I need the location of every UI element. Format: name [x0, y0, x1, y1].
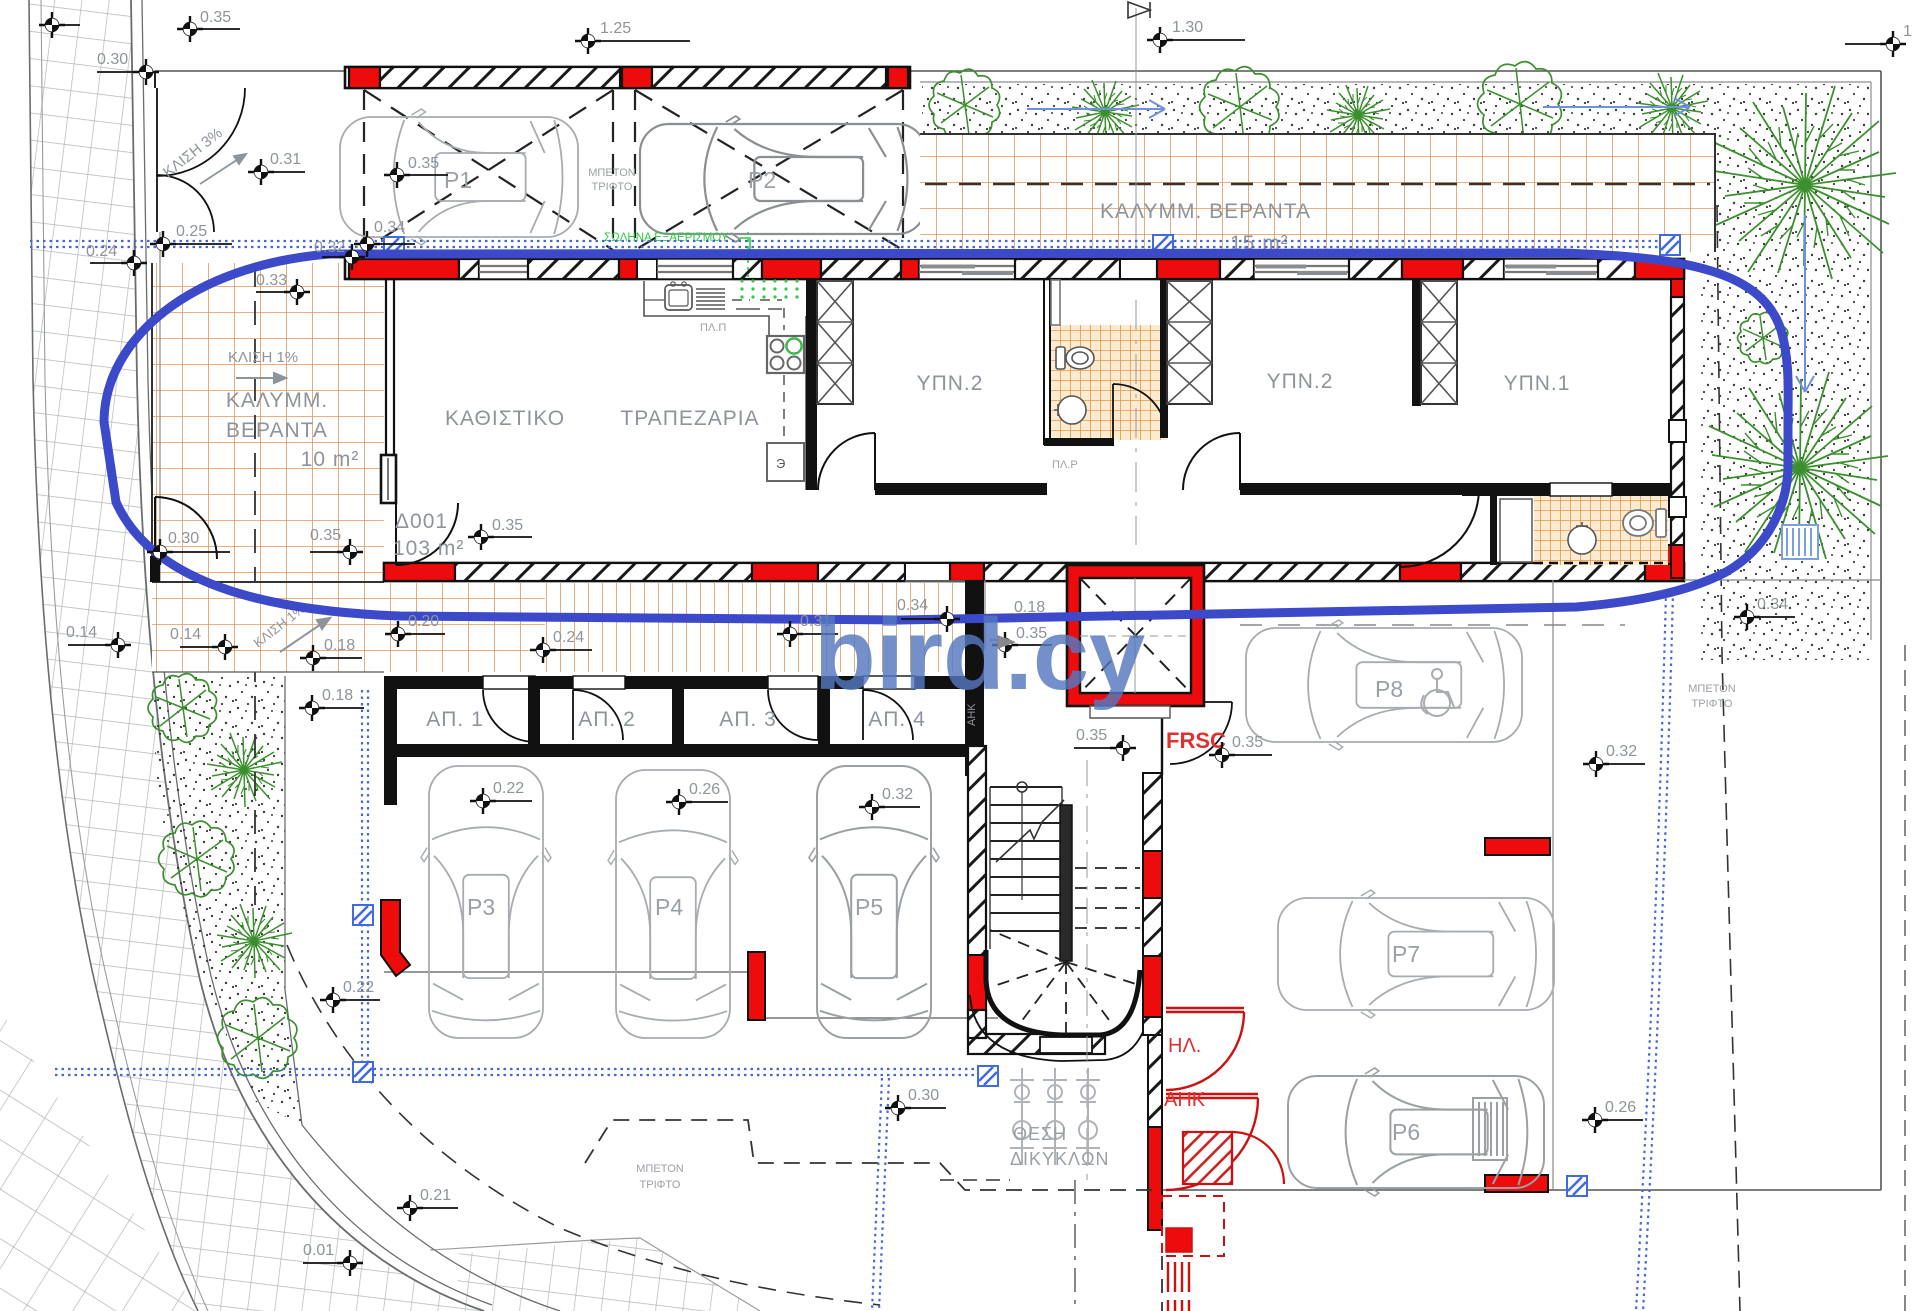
svg-text:ΚΑΘΙΣΤΙΚΟ: ΚΑΘΙΣΤΙΚΟ — [445, 407, 565, 430]
svg-text:ΥΠΝ.2: ΥΠΝ.2 — [917, 372, 984, 395]
svg-text:P5: P5 — [855, 894, 883, 920]
svg-text:0.35: 0.35 — [310, 527, 341, 544]
svg-text:0.35: 0.35 — [1232, 734, 1263, 751]
svg-text:1: 1 — [1903, 23, 1912, 40]
svg-text:0.32: 0.32 — [314, 239, 345, 256]
svg-text:ΑΠ. 3: ΑΠ. 3 — [719, 708, 777, 731]
svg-text:P6: P6 — [1392, 1119, 1420, 1145]
svg-text:ΘΕΣΗ: ΘΕΣΗ — [1013, 1124, 1067, 1144]
svg-text:Э: Э — [776, 456, 785, 471]
svg-text:0.22: 0.22 — [343, 979, 374, 996]
svg-text:ΔΙΚΥΚΛΩΝ: ΔΙΚΥΚΛΩΝ — [1010, 1149, 1110, 1169]
svg-text:P7: P7 — [1392, 941, 1420, 967]
svg-text:0.20: 0.20 — [408, 613, 439, 630]
svg-text:0.01: 0.01 — [303, 1242, 334, 1259]
svg-text:ΑΠ. 4: ΑΠ. 4 — [868, 708, 926, 731]
svg-text:P1: P1 — [444, 167, 472, 193]
svg-text:ΑΠ. 1: ΑΠ. 1 — [426, 708, 484, 731]
svg-text:P8: P8 — [1375, 676, 1403, 702]
svg-text:0.14: 0.14 — [170, 626, 201, 643]
svg-text:0.34: 0.34 — [374, 219, 405, 236]
svg-text:0.35: 0.35 — [200, 9, 231, 26]
svg-text:ΒΕΡΑΝΤΑ: ΒΕΡΑΝΤΑ — [226, 419, 328, 442]
svg-text:P2: P2 — [748, 167, 776, 193]
svg-text:ΤΡΑΠΕΖΑΡΙΑ: ΤΡΑΠΕΖΑΡΙΑ — [620, 407, 759, 430]
svg-text:0.26: 0.26 — [1605, 1099, 1636, 1116]
svg-text:Δ001: Δ001 — [395, 510, 448, 533]
svg-text:0.30: 0.30 — [97, 51, 128, 68]
svg-text:ΚΛΙΣΗ 1%: ΚΛΙΣΗ 1% — [228, 349, 298, 366]
svg-text:0.31: 0.31 — [270, 151, 301, 168]
svg-text:ΚΑΛΥΜΜ. ΒΕΡΑΝΤΑ: ΚΑΛΥΜΜ. ΒΕΡΑΝΤΑ — [1100, 200, 1311, 223]
svg-text:ΑΠ. 2: ΑΠ. 2 — [578, 708, 636, 731]
svg-text:P4: P4 — [655, 894, 683, 920]
svg-text:ΜΠΕΤΟΝ: ΜΠΕΤΟΝ — [588, 167, 636, 179]
svg-text:0.18: 0.18 — [322, 687, 353, 704]
svg-text:0.33: 0.33 — [256, 272, 287, 289]
svg-text:0.35: 0.35 — [1076, 727, 1107, 744]
svg-text:ΤΡΙΦΤΟ: ΤΡΙΦΤΟ — [592, 181, 633, 193]
svg-text:ΚΑΛΥΜΜ.: ΚΑΛΥΜΜ. — [226, 389, 328, 412]
svg-text:0.32: 0.32 — [882, 786, 913, 803]
svg-text:0.24: 0.24 — [553, 629, 584, 646]
svg-text:ΗΛ.: ΗΛ. — [1168, 1035, 1201, 1057]
svg-text:1.25: 1.25 — [600, 20, 631, 37]
svg-text:0.34: 0.34 — [1757, 596, 1788, 613]
svg-text:103 m²: 103 m² — [393, 537, 464, 560]
svg-text:ΠΛ.Ρ: ΠΛ.Ρ — [1052, 459, 1078, 471]
svg-text:0.18: 0.18 — [324, 637, 355, 654]
svg-text:ΜΠΕΤΟΝ: ΜΠΕΤΟΝ — [1688, 683, 1736, 695]
svg-text:1.30: 1.30 — [1172, 19, 1203, 36]
svg-text:0.22: 0.22 — [493, 780, 524, 797]
svg-text:0.35: 0.35 — [492, 517, 523, 534]
svg-text:0.30: 0.30 — [168, 530, 199, 547]
svg-text:0.26: 0.26 — [689, 781, 720, 798]
svg-text:ΤΡΙΦΤΟ: ΤΡΙΦΤΟ — [1692, 698, 1733, 710]
svg-text:0.32: 0.32 — [1606, 743, 1637, 760]
svg-text:ΣΩΛΗΝΑ ΕΞΑΕΡΙΣΜΟΥ: ΣΩΛΗΝΑ ΕΞΑΕΡΙΣΜΟΥ — [604, 232, 729, 244]
svg-text:ΤΡΙΦΤΟ: ΤΡΙΦΤΟ — [640, 1179, 681, 1191]
svg-text:ΑΗΚ: ΑΗΚ — [1164, 1089, 1206, 1111]
svg-text:10 m²: 10 m² — [301, 448, 360, 471]
svg-text:0.25: 0.25 — [176, 223, 207, 240]
svg-text:FRSC: FRSC — [1166, 728, 1226, 753]
svg-text:ΠΛ.Π: ΠΛ.Π — [700, 322, 726, 334]
svg-text:ΜΠΕΤΟΝ: ΜΠΕΤΟΝ — [636, 1163, 684, 1175]
svg-text:ΥΠΝ.1: ΥΠΝ.1 — [1504, 372, 1571, 395]
svg-text:P3: P3 — [467, 894, 495, 920]
svg-text:0.21: 0.21 — [420, 1187, 451, 1204]
svg-text:0.14: 0.14 — [66, 624, 97, 641]
svg-text:0.30: 0.30 — [908, 1087, 939, 1104]
svg-text:0.35: 0.35 — [408, 155, 439, 172]
svg-text:0.24: 0.24 — [86, 243, 117, 260]
svg-text:ΥΠΝ.2: ΥΠΝ.2 — [1267, 370, 1334, 393]
svg-text:bird.cy: bird.cy — [814, 599, 1145, 711]
